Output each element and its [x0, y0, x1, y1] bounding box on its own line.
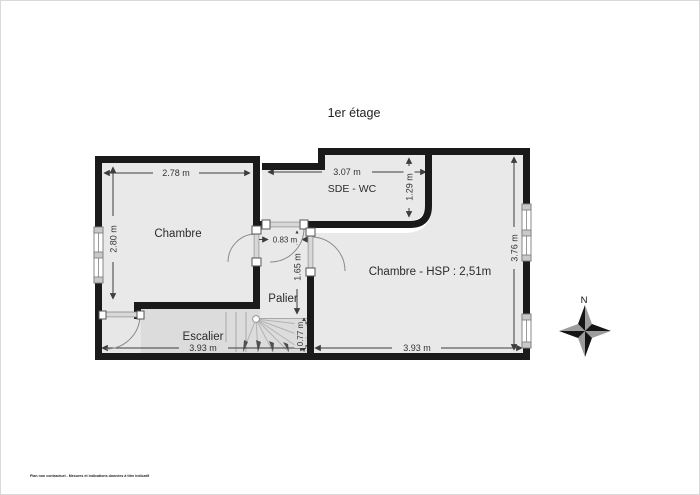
- dimension-chambre-height: 2.80 m: [109, 225, 119, 253]
- footer-disclaimer: Plan non contractuel - Mesures et indica…: [30, 474, 149, 478]
- room-label-palier: Palier: [268, 293, 298, 305]
- dimension-chambre2-width: 3.93 m: [403, 343, 431, 353]
- dimension-sde-height: 1.29 m: [405, 173, 415, 201]
- window-chambre2-right-upper: [522, 204, 531, 261]
- floor-plan-page: 2.78 m 2.80 m 3.07 m 1.29 m 0.83 m 1.65 …: [0, 0, 700, 495]
- room-label-chambre: Chambre: [154, 228, 201, 240]
- dimension-stair-width: 0.77 m: [296, 321, 305, 346]
- window-chambre-left: [94, 227, 103, 283]
- page-title: 1er étage: [328, 106, 381, 120]
- dimension-sde-width: 3.07 m: [333, 167, 361, 177]
- dimension-escalier-width: 3.93 m: [189, 343, 217, 353]
- window-chambre2-right-lower: [522, 314, 531, 348]
- room-label-chambre2: Chambre - HSP : 2,51m: [369, 266, 492, 278]
- dimension-palier-height: 1.65 m: [293, 253, 303, 281]
- compass-rose: N: [559, 295, 611, 357]
- dimension-chambre2-height: 3.76 m: [510, 234, 520, 262]
- room-label-sde-wc: SDE - WC: [328, 183, 377, 195]
- room-label-escalier: Escalier: [183, 331, 224, 343]
- dimension-palier-door-width: 0.83 m: [273, 236, 298, 245]
- stair-newel: [253, 316, 260, 323]
- compass-north-label: N: [581, 295, 588, 306]
- dimension-chambre-width: 2.78 m: [162, 168, 190, 178]
- floor-plan-drawing: 2.78 m 2.80 m 3.07 m 1.29 m 0.83 m 1.65 …: [0, 0, 700, 495]
